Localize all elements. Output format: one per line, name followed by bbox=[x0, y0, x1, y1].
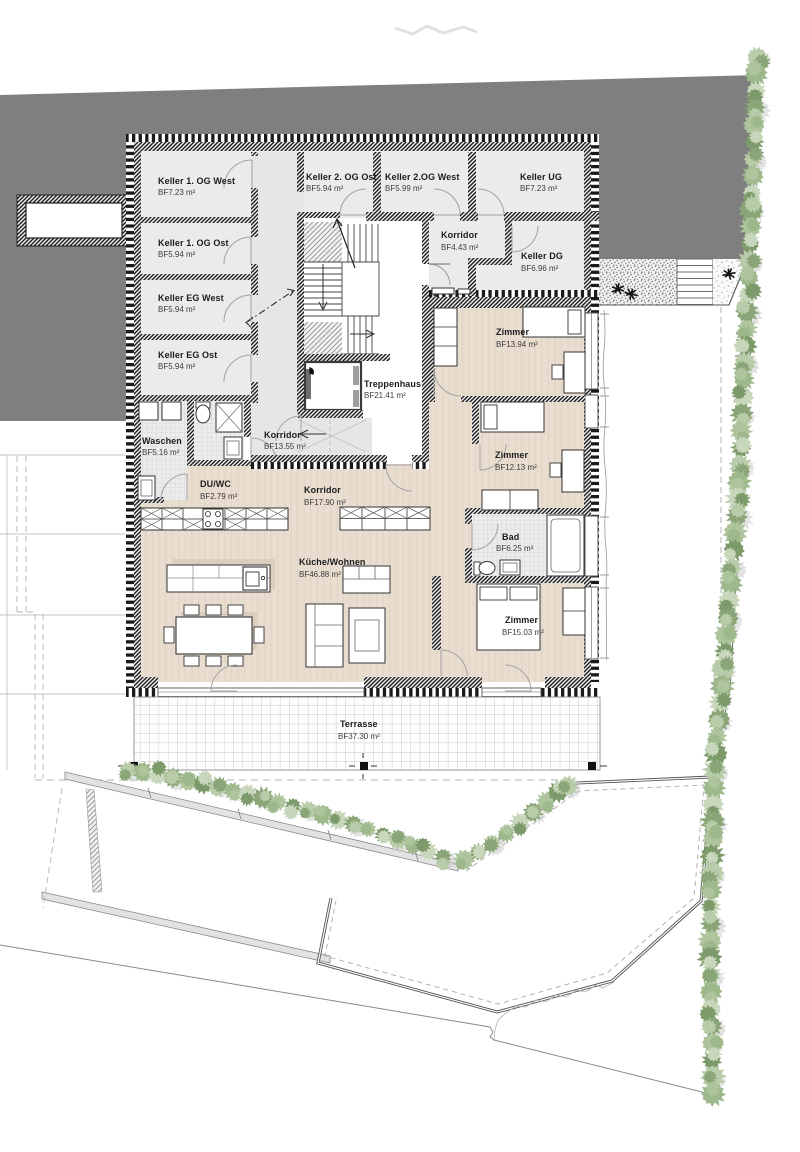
svg-text:Keller DG: Keller DG bbox=[521, 251, 563, 261]
svg-text:BF5.94 m²: BF5.94 m² bbox=[158, 305, 196, 314]
svg-text:Keller UG: Keller UG bbox=[520, 172, 562, 182]
svg-text:Terrasse: Terrasse bbox=[340, 719, 378, 729]
svg-text:Keller EG West: Keller EG West bbox=[158, 293, 224, 303]
svg-text:Zimmer: Zimmer bbox=[496, 327, 530, 337]
svg-text:BF6.25 m²: BF6.25 m² bbox=[496, 544, 534, 553]
svg-text:Korridor: Korridor bbox=[264, 430, 301, 440]
svg-text:Korridor: Korridor bbox=[441, 230, 478, 240]
svg-text:Keller 1. OG West: Keller 1. OG West bbox=[158, 176, 235, 186]
svg-text:BF21.41 m²: BF21.41 m² bbox=[364, 391, 406, 400]
svg-text:BF5.99 m²: BF5.99 m² bbox=[385, 184, 423, 193]
svg-text:Zimmer: Zimmer bbox=[505, 615, 539, 625]
svg-text:BF13.94 m²: BF13.94 m² bbox=[496, 340, 538, 349]
svg-text:Keller EG Ost: Keller EG Ost bbox=[158, 350, 217, 360]
svg-text:BF5.16 m²: BF5.16 m² bbox=[142, 448, 180, 457]
svg-text:Waschen: Waschen bbox=[142, 436, 182, 446]
svg-text:BF15.03 m²: BF15.03 m² bbox=[502, 628, 544, 637]
svg-text:BF5.94 m²: BF5.94 m² bbox=[158, 250, 196, 259]
svg-text:DU/WC: DU/WC bbox=[200, 479, 231, 489]
svg-text:BF2.79 m²: BF2.79 m² bbox=[200, 492, 238, 501]
svg-text:BF5.94 m²: BF5.94 m² bbox=[158, 362, 196, 371]
svg-text:Zimmer: Zimmer bbox=[495, 450, 529, 460]
svg-text:BF17.90 m²: BF17.90 m² bbox=[304, 498, 346, 507]
svg-text:Keller 2.OG West: Keller 2.OG West bbox=[385, 172, 459, 182]
svg-text:Küche/Wohnen: Küche/Wohnen bbox=[299, 557, 366, 567]
svg-text:BF4.43 m²: BF4.43 m² bbox=[441, 243, 479, 252]
svg-text:BF13.55 m²: BF13.55 m² bbox=[264, 442, 306, 451]
svg-text:Korridor: Korridor bbox=[304, 485, 341, 495]
svg-text:Keller 2. OG Ost: Keller 2. OG Ost bbox=[306, 172, 377, 182]
svg-text:BF7.23 m²: BF7.23 m² bbox=[520, 184, 558, 193]
svg-text:BF6.96 m²: BF6.96 m² bbox=[521, 264, 559, 273]
svg-text:Treppenhaus: Treppenhaus bbox=[364, 379, 421, 389]
svg-text:BF12.13 m²: BF12.13 m² bbox=[495, 463, 537, 472]
svg-text:Bad: Bad bbox=[502, 532, 519, 542]
svg-text:BF5.94 m²: BF5.94 m² bbox=[306, 184, 344, 193]
svg-text:BF7.23 m²: BF7.23 m² bbox=[158, 188, 196, 197]
svg-text:Keller 1. OG Ost: Keller 1. OG Ost bbox=[158, 238, 229, 248]
svg-text:BF46.88 m²: BF46.88 m² bbox=[299, 570, 341, 579]
svg-text:BF37.30 m²: BF37.30 m² bbox=[338, 732, 380, 741]
